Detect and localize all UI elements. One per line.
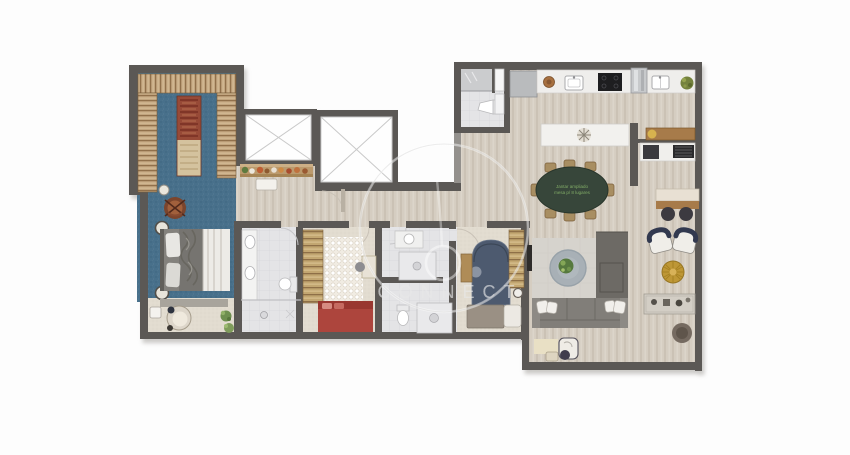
svg-text:CONNECT: CONNECT — [378, 282, 523, 302]
svg-text:Jantar ampliado: Jantar ampliado — [556, 184, 589, 189]
svg-text:mesa p/ 8 lugares: mesa p/ 8 lugares — [554, 190, 591, 195]
